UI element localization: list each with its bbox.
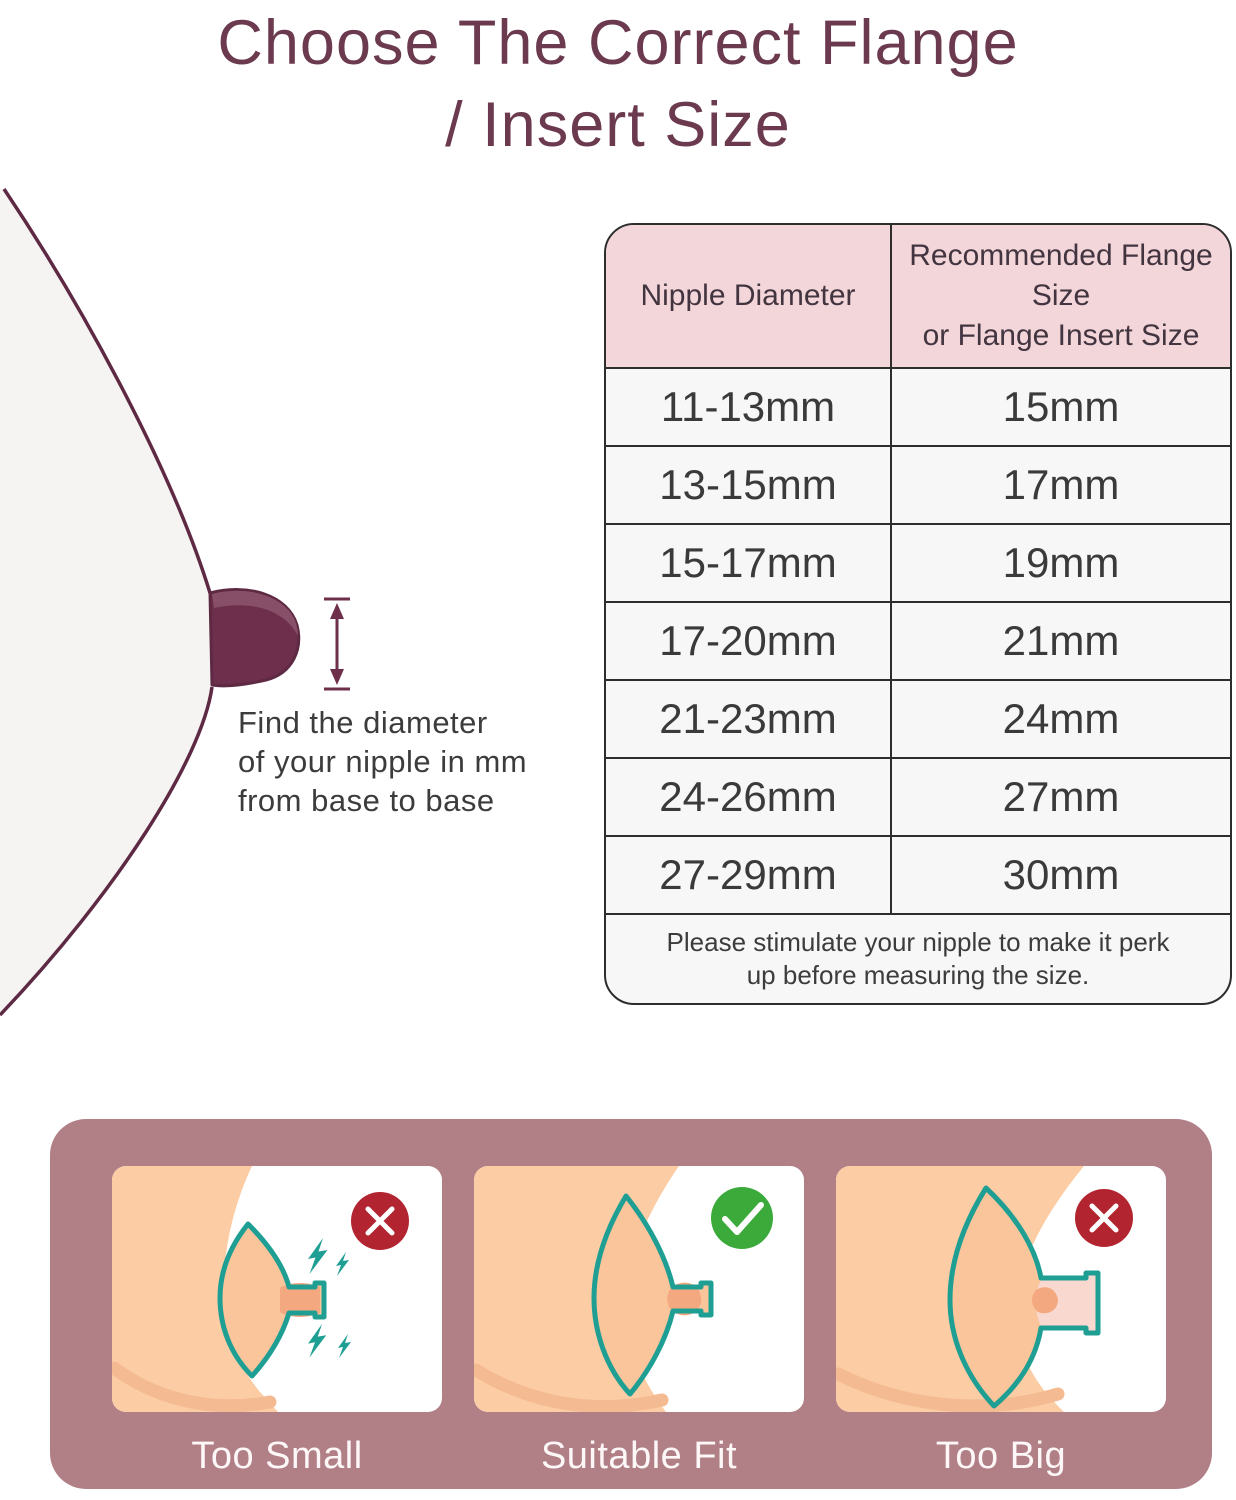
- suitable-fit-illustration: [474, 1166, 804, 1412]
- page-title-line2: / Insert Size: [0, 84, 1236, 166]
- header-nipple-diameter: Nipple Diameter: [606, 225, 892, 367]
- header-flange-line1: Recommended Flange Size: [892, 236, 1230, 316]
- too-small-illustration: [112, 1166, 442, 1412]
- nipple-diameter-cell: 24-26mm: [606, 759, 892, 835]
- flange-size-cell: 17mm: [892, 447, 1230, 523]
- table-row: 24-26mm 27mm: [606, 759, 1230, 837]
- x-badge: [1075, 1189, 1133, 1247]
- header-flange-line2: or Flange Insert Size: [923, 316, 1200, 356]
- fit-label-too-small: Too Small: [112, 1435, 442, 1478]
- fit-card-suitable-fit: [474, 1166, 804, 1412]
- flange-size-cell: 15mm: [892, 369, 1230, 445]
- header-nipple-diameter-label: Nipple Diameter: [640, 276, 855, 316]
- too-big-illustration: [836, 1166, 1166, 1412]
- nipple-diameter-cell: 15-17mm: [606, 525, 892, 601]
- flange-size-cell: 27mm: [892, 759, 1230, 835]
- table-footnote-line1: Please stimulate your nipple to make it …: [667, 926, 1170, 959]
- diameter-arrow: [324, 599, 350, 689]
- nipple-diameter-cell: 11-13mm: [606, 369, 892, 445]
- header-recommended-flange: Recommended Flange Size or Flange Insert…: [892, 225, 1230, 367]
- table-row: 27-29mm 30mm: [606, 837, 1230, 915]
- table-row: 13-15mm 17mm: [606, 447, 1230, 525]
- breast-measurement-illustration: [0, 185, 600, 1085]
- check-badge: [711, 1187, 773, 1249]
- flange-size-cell: 24mm: [892, 681, 1230, 757]
- flange-size-cell: 21mm: [892, 603, 1230, 679]
- nipple-diameter-cell: 13-15mm: [606, 447, 892, 523]
- fit-guide-panel: Too Small Suitable Fit Too Big: [50, 1119, 1212, 1489]
- flange-size-table: Nipple Diameter Recommended Flange Size …: [604, 223, 1232, 1005]
- page-title-line1: Choose The Correct Flange: [0, 2, 1236, 84]
- badge-circle: [711, 1187, 773, 1249]
- nipple-diameter-cell: 27-29mm: [606, 837, 892, 913]
- page-title: Choose The Correct Flange / Insert Size: [0, 2, 1236, 166]
- table-row: 17-20mm 21mm: [606, 603, 1230, 681]
- measurement-caption: Find the diameter of your nipple in mm f…: [238, 703, 578, 820]
- nipple-diameter-cell: 17-20mm: [606, 603, 892, 679]
- measurement-caption-line2: of your nipple in mm: [238, 742, 578, 781]
- fit-card-too-small: [112, 1166, 442, 1412]
- table-row: 15-17mm 19mm: [606, 525, 1230, 603]
- table-row: 11-13mm 15mm: [606, 369, 1230, 447]
- table-footnote: Please stimulate your nipple to make it …: [606, 915, 1230, 1003]
- table-header-row: Nipple Diameter Recommended Flange Size …: [606, 225, 1230, 369]
- nipple-diameter-cell: 21-23mm: [606, 681, 892, 757]
- fit-label-suitable-fit: Suitable Fit: [474, 1435, 804, 1478]
- table-footnote-line2: up before measuring the size.: [747, 959, 1090, 992]
- measurement-caption-line3: from base to base: [238, 781, 578, 820]
- infographic-page: Choose The Correct Flange / Insert Size …: [0, 0, 1236, 1500]
- flange-size-cell: 19mm: [892, 525, 1230, 601]
- fit-card-too-big: [836, 1166, 1166, 1412]
- x-badge: [351, 1192, 409, 1250]
- table-row: 21-23mm 24mm: [606, 681, 1230, 759]
- fit-label-too-big: Too Big: [836, 1435, 1166, 1478]
- flange-size-cell: 30mm: [892, 837, 1230, 913]
- measurement-caption-line1: Find the diameter: [238, 703, 578, 742]
